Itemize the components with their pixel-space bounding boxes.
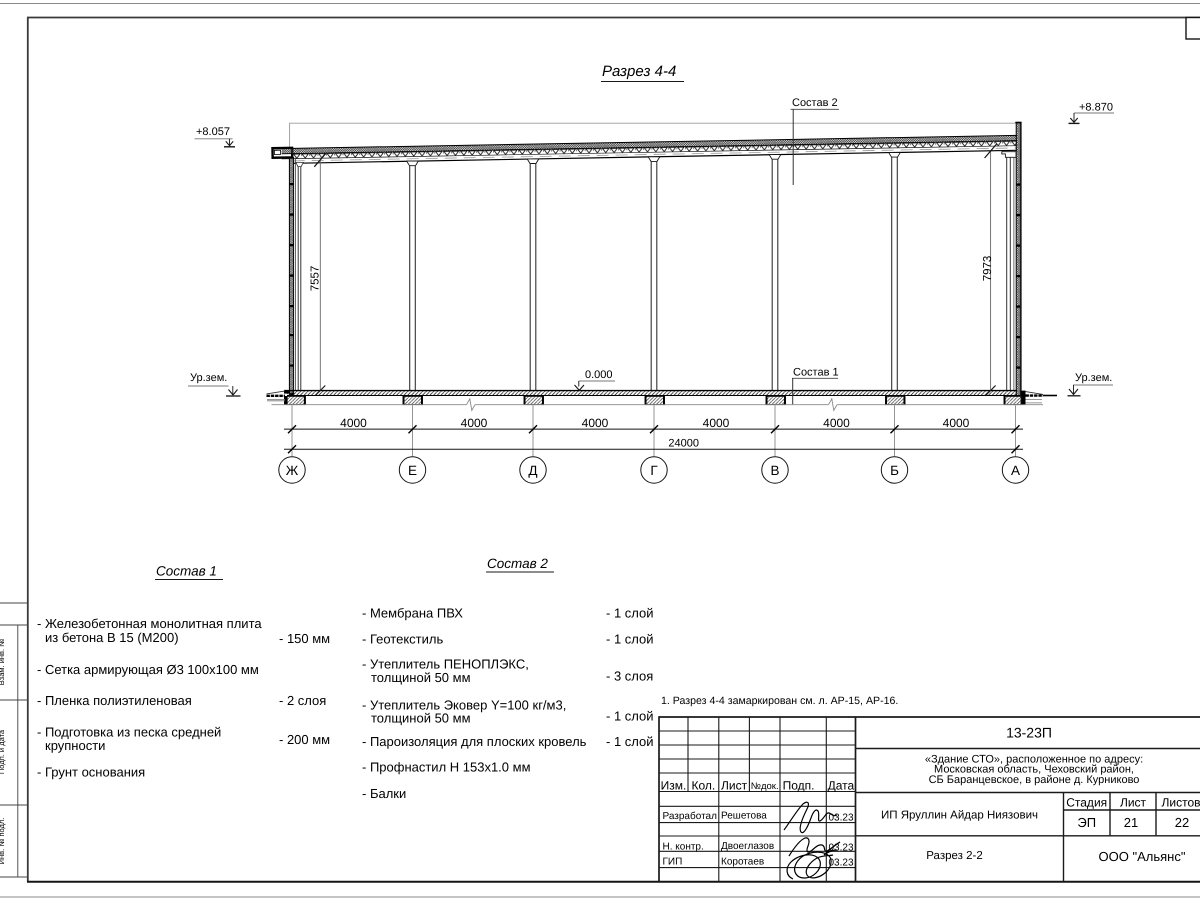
svg-text:Н. контр.: Н. контр. <box>663 842 704 853</box>
svg-text:СБ Баранцевское, в районе д. К: СБ Баранцевское, в районе д. Курниково <box>929 774 1140 786</box>
svg-text:Коротаев: Коротаев <box>721 857 764 868</box>
svg-text:Подп. и дата: Подп. и дата <box>0 729 6 774</box>
svg-text:21: 21 <box>1124 815 1138 830</box>
svg-text:0.000: 0.000 <box>585 369 613 381</box>
svg-text:В: В <box>770 463 779 478</box>
svg-text:толщиной 50 мм: толщиной 50 мм <box>371 711 471 726</box>
svg-text:4000: 4000 <box>703 416 730 430</box>
svg-text:А: А <box>1011 463 1020 478</box>
svg-text:22: 22 <box>1175 815 1189 830</box>
svg-text:- 3 слоя: - 3 слоя <box>606 669 653 684</box>
svg-text:Состав 2: Состав 2 <box>792 97 838 109</box>
svg-text:Листов: Листов <box>1162 796 1200 810</box>
svg-text:- Сетка армирующая Ø3 100х100: - Сетка армирующая Ø3 100х100 мм <box>37 662 259 677</box>
svg-text:Лист: Лист <box>721 779 748 793</box>
svg-text:- Грунт основания: - Грунт основания <box>37 765 145 780</box>
svg-text:Разработал: Разработал <box>663 811 718 822</box>
svg-text:- Профнастил Н 153х1.0 мм: - Профнастил Н 153х1.0 мм <box>362 760 531 775</box>
svg-text:+8.870: +8.870 <box>1079 102 1113 114</box>
svg-text:+8.057: +8.057 <box>196 126 230 138</box>
svg-text:Е: Е <box>408 463 417 478</box>
svg-text:7973: 7973 <box>982 256 994 282</box>
svg-text:ИП Яруллин Айдар Ниязович: ИП Яруллин Айдар Ниязович <box>881 810 1038 822</box>
svg-text:№док.: №док. <box>751 781 779 792</box>
svg-text:4000: 4000 <box>461 416 488 430</box>
svg-text:Состав 2: Состав 2 <box>487 556 548 571</box>
svg-text:Г: Г <box>650 463 658 478</box>
svg-text:- Балки: - Балки <box>362 786 406 801</box>
svg-text:Состав 1: Состав 1 <box>156 564 217 579</box>
svg-text:4000: 4000 <box>582 416 609 430</box>
svg-text:7557: 7557 <box>309 266 321 292</box>
svg-text:- Пароизоляция для плоских кро: - Пароизоляция для плоских кровель <box>362 734 587 749</box>
svg-text:Двоеглазов: Двоеглазов <box>721 841 774 852</box>
svg-text:Взам. инв. №: Взам. инв. № <box>0 639 6 685</box>
svg-text:03.23: 03.23 <box>829 813 854 824</box>
svg-text:ЭП: ЭП <box>1077 815 1096 830</box>
svg-text:- 1 слой: - 1 слой <box>606 709 654 724</box>
svg-text:Дата: Дата <box>828 779 855 793</box>
svg-text:- 1 слой: - 1 слой <box>606 734 654 749</box>
svg-text:1. Разрез 4-4 замаркирован см.: 1. Разрез 4-4 замаркирован см. л. АР-15,… <box>661 695 898 707</box>
svg-text:4000: 4000 <box>823 416 850 430</box>
svg-text:Разрез 2-2: Разрез 2-2 <box>926 850 982 862</box>
svg-text:13-23П: 13-23П <box>1006 725 1052 741</box>
svg-text:- Железобетонная монолитная п: - Железобетонная монолитная плита <box>37 616 262 631</box>
svg-text:из бетона В 15 (М200): из бетона В 15 (М200) <box>45 630 179 645</box>
svg-text:Ж: Ж <box>286 463 299 478</box>
svg-text:Подп.: Подп. <box>783 779 815 793</box>
svg-text:Лист: Лист <box>1120 796 1147 810</box>
svg-text:Разрез 4-4: Разрез 4-4 <box>602 63 676 80</box>
svg-text:- Мембрана ПВХ: - Мембрана ПВХ <box>362 606 463 621</box>
svg-text:- 150 мм: - 150 мм <box>279 631 330 646</box>
svg-text:4000: 4000 <box>340 416 367 430</box>
svg-text:- Пленка полиэтиленовая: - Пленка полиэтиленовая <box>37 693 192 708</box>
svg-text:крупности: крупности <box>45 738 105 753</box>
svg-text:- Геотекстиль: - Геотекстиль <box>362 632 443 647</box>
svg-text:Ур.зем.: Ур.зем. <box>1075 372 1112 384</box>
svg-text:Состав 1: Состав 1 <box>793 367 839 379</box>
svg-text:- 1 слой: - 1 слой <box>606 606 654 621</box>
svg-text:Д: Д <box>528 463 537 478</box>
svg-text:ООО "Альянс": ООО "Альянс" <box>1099 849 1186 864</box>
svg-text:Ур.зем.: Ур.зем. <box>190 372 227 384</box>
svg-text:- 200 мм: - 200 мм <box>279 732 330 747</box>
svg-text:ГИП: ГИП <box>663 857 683 868</box>
svg-text:Кол.: Кол. <box>692 779 716 793</box>
svg-text:03.23: 03.23 <box>829 858 854 869</box>
svg-text:- 1 слой: - 1 слой <box>606 632 654 647</box>
svg-text:толщиной 50 мм: толщиной 50 мм <box>371 670 471 685</box>
svg-text:Решетова: Решетова <box>721 811 767 822</box>
svg-text:- 2 слоя: - 2 слоя <box>279 693 326 708</box>
svg-text:24000: 24000 <box>668 437 699 449</box>
svg-text:Инв. № подл.: Инв. № подл. <box>0 818 6 865</box>
svg-text:4000: 4000 <box>943 416 970 430</box>
svg-text:Стадия: Стадия <box>1066 796 1107 810</box>
svg-text:Изм.: Изм. <box>661 779 687 793</box>
svg-text:Б: Б <box>890 463 899 478</box>
